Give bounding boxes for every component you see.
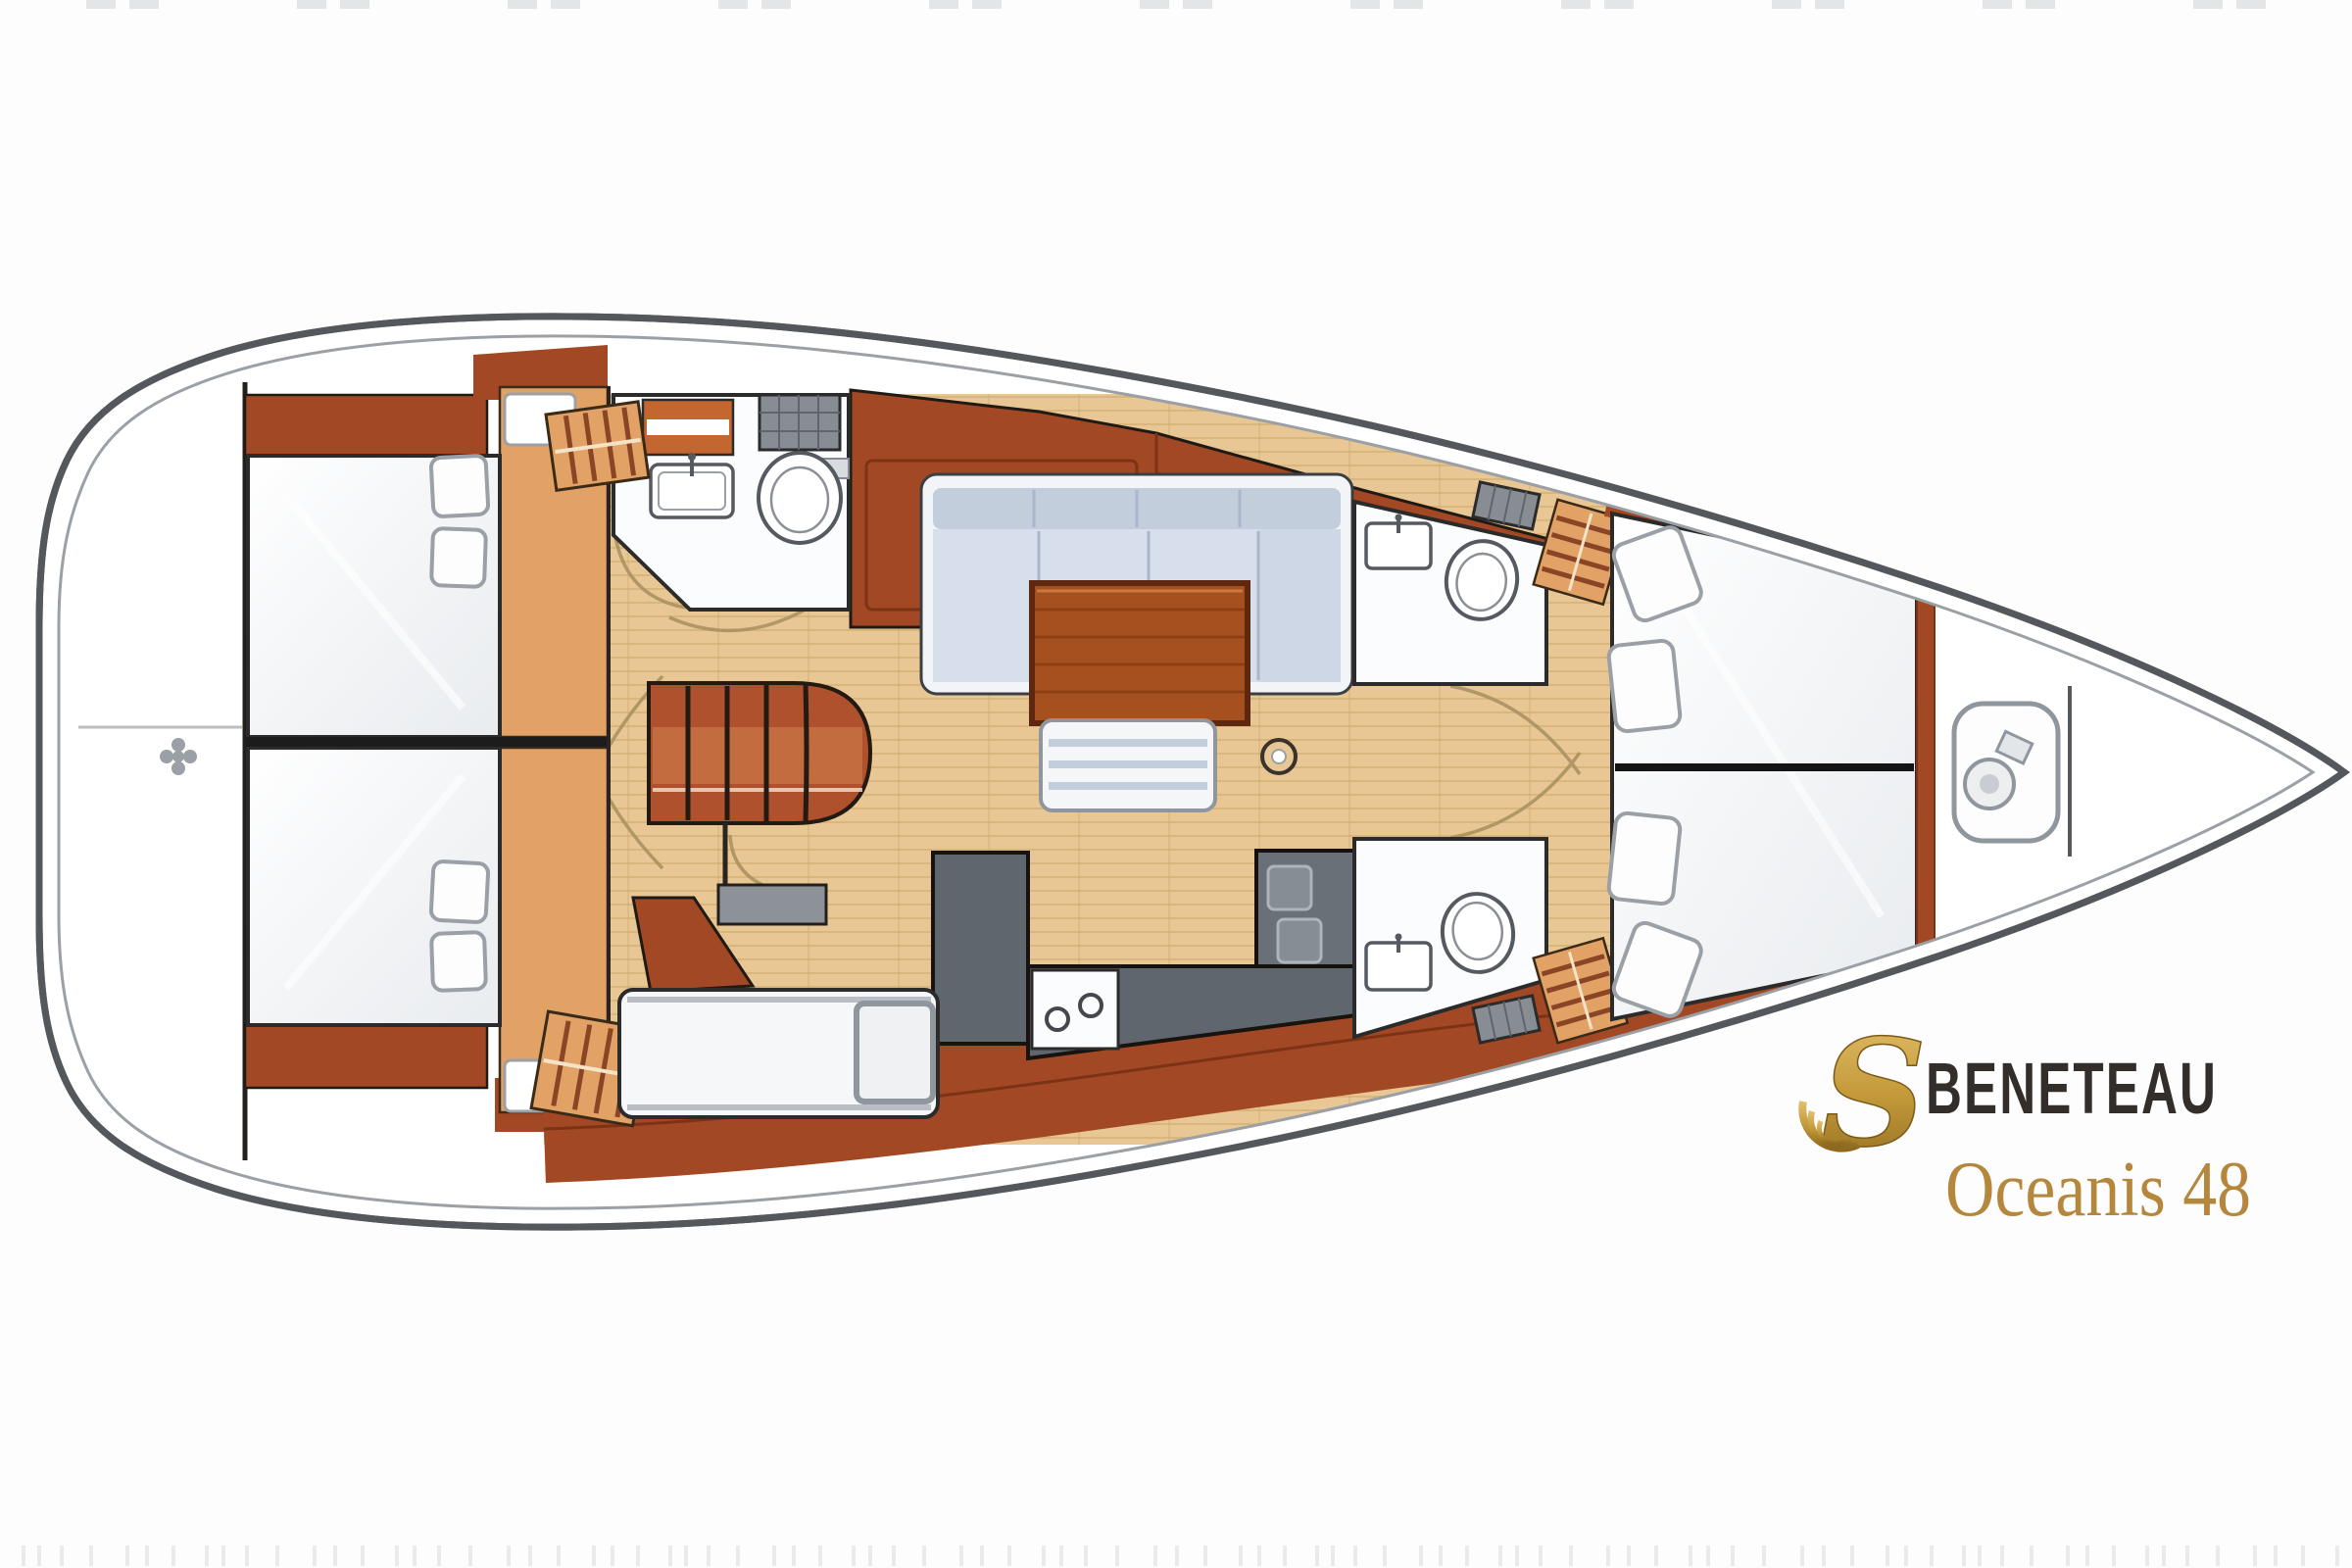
brand-wordmark: BENETEAU (1926, 1048, 2218, 1129)
interior (78, 345, 2070, 1160)
nav-seat (857, 1004, 933, 1102)
saloon-table (1032, 583, 1248, 723)
aft-stbd-hull-trim (245, 1025, 487, 1088)
vanity-shelf (647, 419, 729, 435)
top-edge-dashes (86, 0, 2266, 9)
step-highlight (653, 727, 862, 784)
aft-port-hull-trim (245, 395, 487, 456)
model-name: Oceanis 48 (1945, 1147, 2251, 1233)
fwd-berth-bow-trim (1917, 574, 1935, 960)
companionway-landing (718, 885, 826, 924)
sink (1366, 514, 1431, 569)
sofa-corner-seat (1258, 529, 1341, 682)
oceanis-48-floorplan: S BENETEAU Oceanis 48 (0, 0, 2352, 1568)
svg-text:S: S (1821, 1007, 1927, 1180)
bottom-edge-ticks (22, 1545, 2339, 1566)
saloon-bench (1041, 720, 1215, 810)
mast-post (1262, 740, 1296, 773)
shower-grate (759, 395, 840, 450)
beneteau-logo: S BENETEAU Oceanis 48 (1802, 1007, 2251, 1233)
sink (1366, 934, 1431, 991)
seahorse-s-icon: S (1802, 1007, 1927, 1180)
windlass (1954, 704, 2058, 841)
galley-sink (1032, 970, 1118, 1049)
stove (1256, 851, 1364, 966)
deck-plan-page: S BENETEAU Oceanis 48 (0, 0, 2352, 1568)
galley-counter-vertical (933, 853, 1028, 1044)
aft-port-step-locker (546, 402, 649, 490)
